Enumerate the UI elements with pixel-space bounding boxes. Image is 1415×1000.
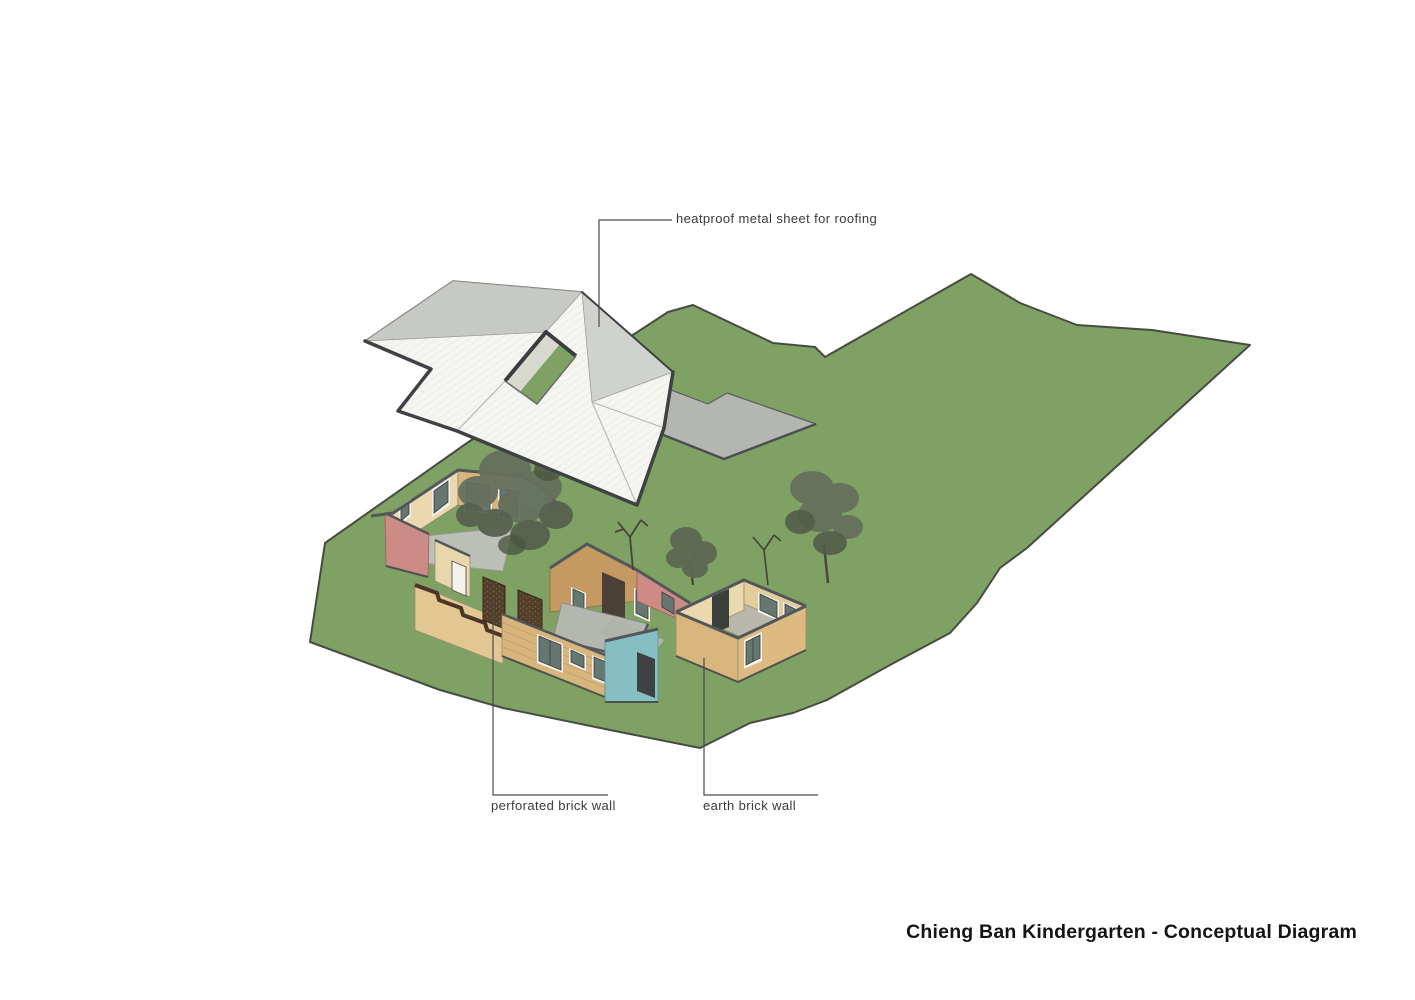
door-dark [637, 652, 655, 698]
label-earth-brick-wall: earth brick wall [703, 798, 796, 813]
leader-roofing [599, 220, 672, 327]
diagram-title: Chieng Ban Kindergarten - Conceptual Dia… [906, 921, 1357, 944]
axonometric-scene [0, 0, 1415, 1000]
blue-wall-front [605, 629, 658, 702]
label-perforated-brick-wall: perforated brick wall [491, 798, 616, 813]
conceptual-diagram-page: heatproof metal sheet for roofing perfor… [0, 0, 1415, 1000]
door-frame [452, 561, 466, 596]
label-heatproof-roofing: heatproof metal sheet for roofing [676, 211, 877, 226]
